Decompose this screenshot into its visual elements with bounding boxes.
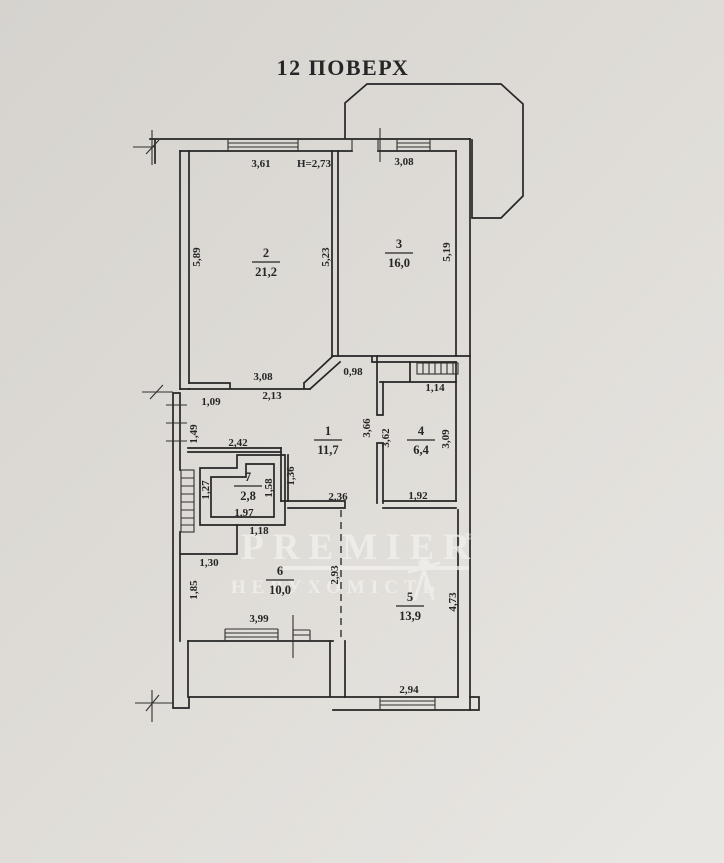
dimension-label: Н=2,73 xyxy=(297,158,332,170)
dimension-label: 1,58 xyxy=(263,478,275,498)
watermark-rule xyxy=(283,566,469,570)
room-area-label: 10,0 xyxy=(269,583,291,597)
dimension-label: 1,14 xyxy=(425,382,445,394)
dimension-label: 2,42 xyxy=(228,437,248,449)
dimension-label: 1,92 xyxy=(408,490,428,502)
room-area-label: 16,0 xyxy=(388,256,410,270)
dimension-label: 2,36 xyxy=(328,491,348,503)
room-area-label: 13,9 xyxy=(399,609,421,623)
dimension-label: 1,30 xyxy=(199,557,219,569)
dimension-label: 3,08 xyxy=(253,371,273,383)
dimension-label: 3,62 xyxy=(380,428,392,448)
room-number-label: 5 xyxy=(407,590,413,604)
room-number-label: 6 xyxy=(277,564,283,578)
dimension-label: 1,27 xyxy=(200,480,212,500)
room-number-label: 4 xyxy=(418,424,425,438)
room-area-label: 6,4 xyxy=(413,443,429,457)
floorplan-svg: PREMIER ® НЕРУХОМІСТЬ 3,61Н=2,733,085,89… xyxy=(0,0,724,863)
dimension-label: 2,13 xyxy=(262,390,282,402)
dimension-label: 1,85 xyxy=(188,580,200,600)
dimension-label: 1,97 xyxy=(234,507,254,519)
room-number-label: 2 xyxy=(263,246,269,260)
watermark-brand: PREMIER xyxy=(241,527,479,568)
room-number-label: 3 xyxy=(396,237,402,251)
room-number-label: 7 xyxy=(245,470,251,484)
dimension-label: 2,93 xyxy=(329,565,341,585)
dimension-label: 4,73 xyxy=(447,592,459,612)
room-area-label: 21,2 xyxy=(255,265,277,279)
dimension-label: 5,19 xyxy=(441,242,453,262)
dimension-label: 1,49 xyxy=(188,424,200,444)
room-number-label: 1 xyxy=(325,424,331,438)
dimension-label: 3,61 xyxy=(251,158,270,170)
dimension-label: 1,36 xyxy=(285,466,297,486)
floorplan-page: PREMIER ® НЕРУХОМІСТЬ 3,61Н=2,733,085,89… xyxy=(0,0,724,863)
dimension-label: 1,09 xyxy=(201,396,221,408)
dimension-label: 1,18 xyxy=(249,525,269,537)
dimension-label: 2,94 xyxy=(399,684,419,696)
watermark-registered-icon: ® xyxy=(464,532,472,543)
plan-title: 12 ПОВЕРХ xyxy=(277,55,410,80)
dimension-label: 3,09 xyxy=(440,429,452,449)
dimension-label: 5,23 xyxy=(320,247,332,267)
dimension-label: 3,08 xyxy=(394,156,414,168)
dimension-label: 3,66 xyxy=(361,418,373,438)
room-area-label: 2,8 xyxy=(240,489,256,503)
dimension-label: 3,99 xyxy=(249,613,269,625)
dimension-label: 5,89 xyxy=(191,247,203,267)
room-area-label: 11,7 xyxy=(317,443,338,457)
dimension-label: 0,98 xyxy=(343,366,363,378)
